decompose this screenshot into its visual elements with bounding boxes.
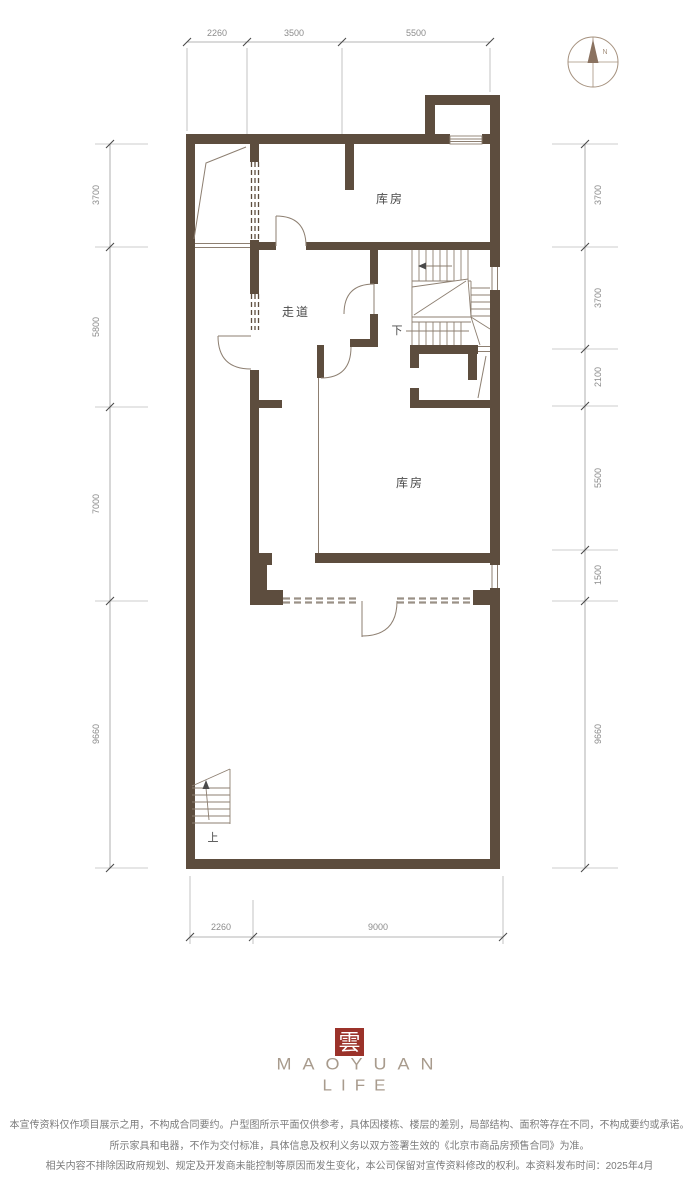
stair-down-label: 下 [392, 325, 403, 337]
dim-bottom-1: 2260 [211, 922, 231, 932]
staircase-upper: 下 [392, 250, 491, 345]
dim-left-2: 5800 [91, 317, 101, 337]
dim-bottom-2: 9000 [368, 922, 388, 932]
dashed-partitions [252, 162, 474, 603]
dim-top-1: 2260 [207, 28, 227, 38]
brand-wordmark-line1: MAOYUAN [0, 1055, 699, 1074]
brand-wordmark-line2: LIFE [0, 1077, 699, 1095]
dimension-top: 2260 3500 5500 [183, 28, 494, 138]
dim-left-4: 9660 [91, 724, 101, 744]
outer-walls [186, 95, 500, 869]
dim-top-2: 3500 [284, 28, 304, 38]
dim-right-6: 9660 [593, 724, 603, 744]
dimension-left: 3700 5800 7000 9660 [91, 140, 148, 872]
staircase-lower: 上 [192, 769, 230, 844]
floorplan-page: 2260 3500 5500 2260 9000 3700 5800 7000 … [0, 0, 699, 1200]
north-needle-icon [588, 39, 599, 63]
dim-right-5: 1500 [593, 565, 603, 585]
disclaimer-line-3: 相关内容不排除因政府规划、规定及开发商未能控制等原因而发生变化，本公司保留对宣传… [0, 1157, 699, 1172]
dim-right-1: 3700 [593, 185, 603, 205]
compass-north-label: N [602, 49, 607, 56]
room-label-storage-top: 库房 [376, 191, 404, 206]
dimension-right: 3700 3700 2100 5500 1500 9660 [552, 140, 618, 872]
dim-right-2: 3700 [593, 288, 603, 308]
dim-right-3: 2100 [593, 367, 603, 387]
interior-walls [250, 144, 500, 605]
seal-character: 雲 [338, 1030, 360, 1055]
brand-seal-icon: 雲 [335, 1028, 364, 1056]
stair-up-label: 上 [208, 831, 219, 844]
dim-right-4: 5500 [593, 468, 603, 488]
compass-rose: N [568, 37, 618, 87]
stair-direction-arrow-icon [203, 780, 210, 789]
disclaimer-line-2: 所示家具和电器，不作为交付标准，具体信息及权利义务以双方签署生效的《北京市商品房… [0, 1137, 699, 1152]
dim-left-3: 7000 [91, 494, 101, 514]
dim-left-1: 3700 [91, 185, 101, 205]
floorplan-drawing: 2260 3500 5500 2260 9000 3700 5800 7000 … [0, 0, 699, 960]
dimension-bottom: 2260 9000 [186, 876, 507, 944]
room-label-corridor: 走道 [282, 305, 310, 319]
room-label-storage-mid: 库房 [396, 475, 424, 490]
dim-top-3: 5500 [406, 28, 426, 38]
disclaimer-line-1: 本宣传资料仅作项目展示之用，不构成合同要约。户型图所示平面仅供参考，具体因楼栋、… [0, 1116, 699, 1131]
